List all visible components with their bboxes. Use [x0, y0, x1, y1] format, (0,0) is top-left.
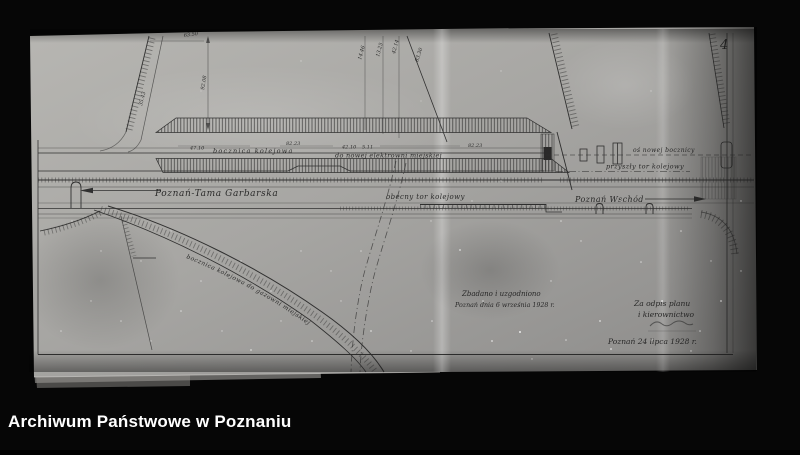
len-3: 42.10	[341, 145, 357, 151]
len-4: 5.11	[362, 145, 373, 151]
plan-drawing-scan: Poznań-Tama Garbarska obecny tor kolejow…	[0, 0, 800, 450]
len-5: 82.23	[468, 143, 482, 149]
label-new-siding-axis: oś nowej bocznicy	[633, 147, 695, 154]
label-future-track: przyszły tor kolejowy	[606, 163, 684, 171]
label-siding: bocznica kolejowa	[213, 147, 294, 155]
archival-scan-viewer: Poznań-Tama Garbarska obecny tor kolejow…	[0, 0, 800, 450]
label-to-power-plant: do nowej elektrowni miejskiej	[335, 152, 442, 160]
archive-caption: Archiwum Państwowe w Poznaniu	[8, 412, 292, 432]
len-1: 47.10	[189, 146, 205, 152]
page-number: 4	[719, 38, 728, 53]
label-destination-right: Poznań Wschód	[574, 195, 644, 204]
annotation-signature-date: Poznań 24 lipca 1928 r.	[607, 337, 697, 346]
label-current-track: obecny tor kolejowy	[386, 193, 465, 201]
annotation-reviewed-2: Poznań dnia 6 września 1928 r.	[454, 302, 555, 309]
label-main-line: Poznań-Tama Garbarska	[154, 188, 278, 199]
annotation-reviewed-1: Zbadano i uzgodniono	[461, 290, 541, 298]
len-2: 82.23	[286, 141, 300, 147]
annotation-signature-2: i kierownictwo	[638, 310, 695, 319]
